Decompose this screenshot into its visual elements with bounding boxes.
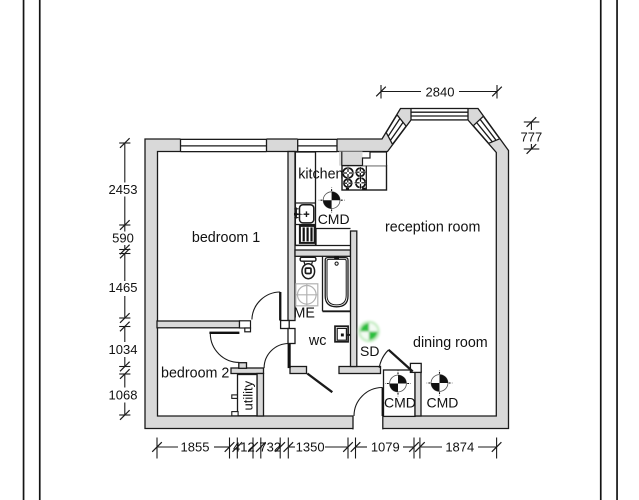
svg-text:1068: 1068 xyxy=(109,388,138,403)
svg-text:CMD: CMD xyxy=(318,211,350,227)
svg-text:1465: 1465 xyxy=(109,280,138,295)
svg-text:SD: SD xyxy=(360,343,379,359)
svg-text:1079: 1079 xyxy=(371,440,400,455)
svg-text:CMD: CMD xyxy=(427,395,459,411)
svg-text:777: 777 xyxy=(521,130,543,145)
svg-text:1350: 1350 xyxy=(296,440,325,455)
svg-text:wc: wc xyxy=(308,333,326,349)
svg-text:bedroom 1: bedroom 1 xyxy=(192,230,260,246)
svg-text:utility: utility xyxy=(241,380,256,410)
svg-text:412: 412 xyxy=(233,440,255,455)
svg-text:2453: 2453 xyxy=(109,182,138,197)
svg-text:1874: 1874 xyxy=(445,440,474,455)
svg-text:ME: ME xyxy=(294,306,315,322)
svg-text:1034: 1034 xyxy=(109,342,138,357)
svg-text:2840: 2840 xyxy=(426,84,455,99)
svg-text:732: 732 xyxy=(259,440,281,455)
svg-text:590: 590 xyxy=(112,230,134,245)
svg-text:kitchen: kitchen xyxy=(298,166,343,182)
svg-text:1855: 1855 xyxy=(181,440,210,455)
svg-text:bedroom 2: bedroom 2 xyxy=(161,365,229,381)
svg-text:reception room: reception room xyxy=(385,220,480,236)
svg-text:dining room: dining room xyxy=(413,335,488,351)
svg-text:CMD: CMD xyxy=(384,395,416,411)
